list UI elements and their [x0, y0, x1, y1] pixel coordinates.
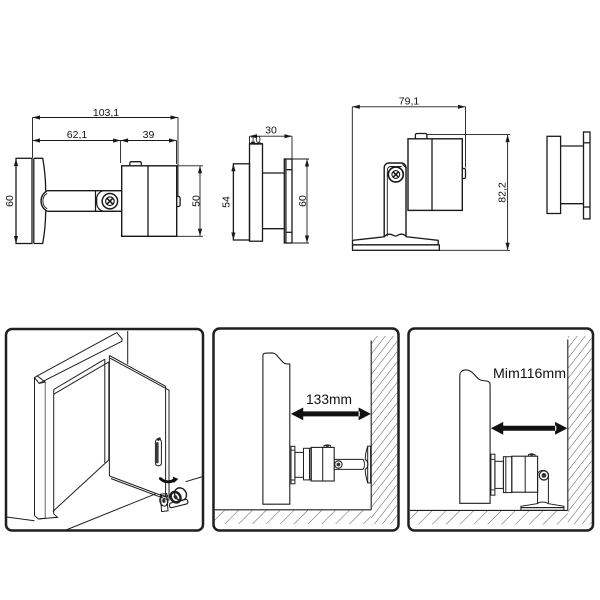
svg-text:39: 39	[143, 129, 155, 141]
svg-text:50: 50	[190, 195, 202, 207]
svg-text:60: 60	[297, 195, 309, 207]
svg-text:62,1: 62,1	[67, 129, 88, 141]
svg-text:79,1: 79,1	[399, 95, 420, 107]
svg-text:30: 30	[265, 125, 277, 137]
svg-text:54: 54	[220, 196, 232, 208]
svg-text:82,2: 82,2	[497, 182, 509, 203]
svg-text:133mm: 133mm	[306, 392, 352, 407]
svg-text:103,1: 103,1	[93, 107, 119, 119]
svg-text:Mim116mm: Mim116mm	[493, 366, 566, 382]
svg-text:60: 60	[4, 195, 16, 207]
